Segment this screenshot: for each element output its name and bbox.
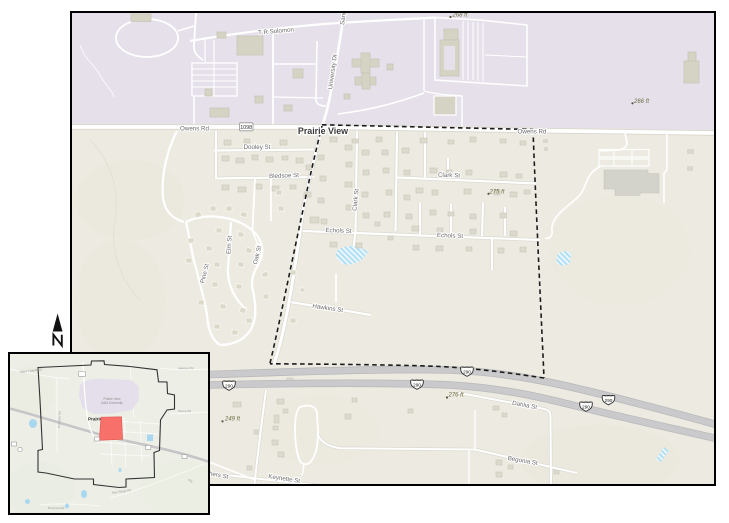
svg-text:275 ft: 275 ft: [488, 190, 504, 196]
svg-text:Bledsoe St: Bledsoe St: [269, 172, 299, 180]
svg-text:Dooley St: Dooley St: [244, 144, 271, 151]
svg-text:A&M University: A&M University: [101, 401, 123, 405]
svg-text:1098: 1098: [240, 125, 252, 131]
svg-text:268 ft: 268 ft: [451, 13, 467, 19]
svg-text:Brumlow Rd: Brumlow Rd: [48, 506, 65, 510]
svg-text:Clark St: Clark St: [438, 172, 461, 180]
svg-text:290: 290: [582, 404, 590, 409]
svg-text:290: 290: [463, 369, 471, 374]
svg-text:Richards Rd: Richards Rd: [57, 411, 62, 428]
svg-text:266 ft: 266 ft: [633, 99, 649, 105]
svg-text:Elm St: Elm St: [225, 235, 233, 254]
svg-text:276 ft: 276 ft: [447, 393, 463, 399]
svg-text:Owens Rd: Owens Rd: [180, 126, 209, 133]
svg-text:290: 290: [225, 383, 233, 388]
svg-text:249 ft: 249 ft: [224, 417, 240, 423]
svg-text:Prairie View: Prairie View: [298, 126, 348, 136]
svg-text:290: 290: [605, 398, 613, 403]
svg-text:290: 290: [413, 382, 421, 387]
svg-text:Echols St: Echols St: [437, 232, 464, 240]
svg-text:Owens Rd: Owens Rd: [518, 129, 547, 136]
svg-text:Pierce Rd: Pierce Rd: [178, 409, 192, 413]
svg-text:Lapeyre Rd: Lapeyre Rd: [178, 366, 194, 370]
svg-text:Echols St: Echols St: [325, 227, 352, 235]
